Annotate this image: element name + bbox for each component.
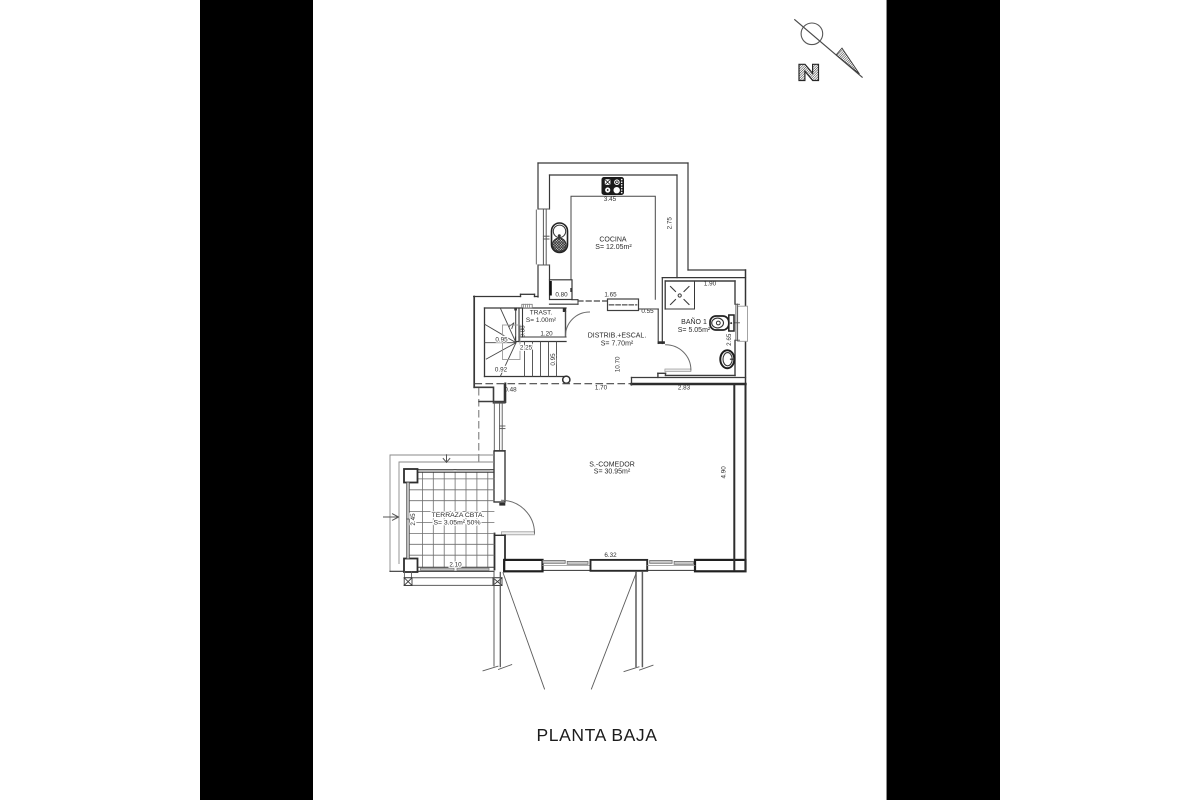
- svg-text:1.20: 1.20: [540, 331, 553, 338]
- svg-text:S= 12.05m²: S= 12.05m²: [595, 244, 632, 251]
- svg-text:10.70: 10.70: [614, 356, 621, 372]
- svg-text:TRAST.: TRAST.: [530, 310, 553, 317]
- svg-text:2.45: 2.45: [410, 513, 417, 526]
- svg-text:S= 5.05m²: S= 5.05m²: [678, 327, 711, 334]
- svg-text:4.90: 4.90: [720, 466, 727, 479]
- svg-text:0.95: 0.95: [550, 353, 557, 366]
- svg-text:1.90: 1.90: [704, 281, 717, 288]
- svg-text:0.95: 0.95: [495, 336, 508, 343]
- svg-text:0.92: 0.92: [495, 366, 508, 373]
- svg-text:S= 3.05m² 50%: S= 3.05m² 50%: [433, 519, 480, 526]
- svg-text:6.32: 6.32: [604, 552, 617, 559]
- svg-text:S= 7.70m²: S= 7.70m²: [601, 341, 634, 348]
- svg-text:S= 1.00m²: S= 1.00m²: [526, 317, 557, 324]
- svg-text:PLANTA BAJA: PLANTA BAJA: [536, 725, 657, 745]
- svg-text:S= 30.95m²: S= 30.95m²: [594, 469, 631, 476]
- svg-text:COCINA: COCINA: [599, 236, 627, 243]
- svg-text:3.45: 3.45: [604, 196, 617, 203]
- svg-text:2.65: 2.65: [726, 333, 733, 346]
- svg-text:2.75: 2.75: [666, 217, 673, 230]
- svg-text:1.70: 1.70: [595, 385, 608, 392]
- svg-text:2.10: 2.10: [449, 562, 462, 569]
- svg-text:BAÑO 1: BAÑO 1: [681, 317, 707, 326]
- svg-text:2.25: 2.25: [520, 344, 533, 351]
- svg-text:0.80: 0.80: [555, 292, 568, 299]
- svg-text:2.83: 2.83: [678, 384, 691, 391]
- svg-text:S.-COMEDOR: S.-COMEDOR: [589, 461, 635, 468]
- svg-text:DISTRIB.+ESCAL.: DISTRIB.+ESCAL.: [588, 332, 647, 339]
- svg-text:1.65: 1.65: [604, 292, 617, 299]
- svg-text:TERRAZA CBTA.: TERRAZA CBTA.: [432, 512, 485, 519]
